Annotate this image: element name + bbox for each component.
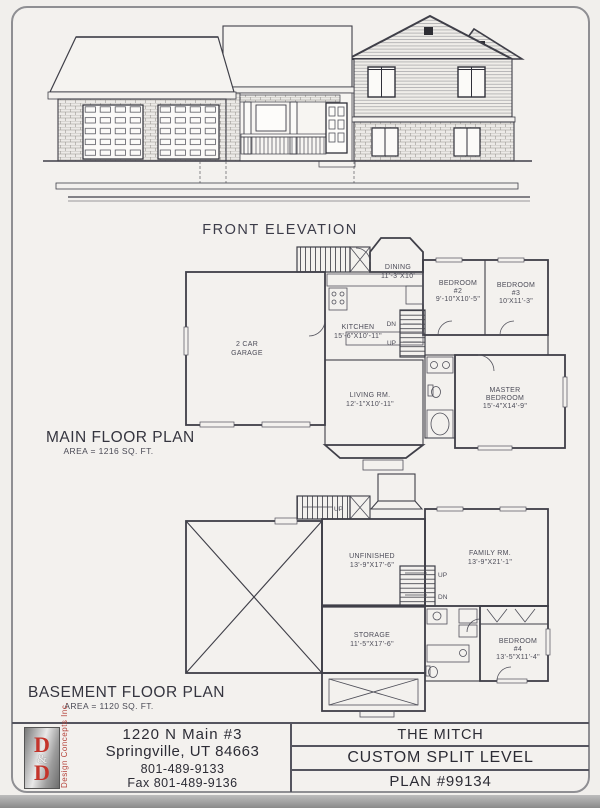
stairs-up-label: UP (438, 572, 447, 579)
master-label: 15'-4"X14'-9" (483, 403, 527, 410)
bedroom2-label: 9'-10"X10'-5" (436, 296, 480, 303)
garage-section (48, 37, 236, 161)
porch-railing (241, 137, 326, 154)
stairs-up-label: UP (334, 506, 343, 513)
bathroom (425, 355, 455, 438)
dining-label: 11'-3"X10' (381, 273, 415, 280)
kitchen-label: KITCHEN (342, 324, 375, 331)
logo-letter-d: D (34, 764, 50, 781)
dining-label: DINING (385, 264, 411, 271)
living-room (325, 360, 423, 470)
scanned-plan-sheet: FRONT ELEVATION (0, 0, 600, 808)
living-label: 12'-1"X10'-11" (346, 401, 394, 408)
center-entry-section (221, 26, 355, 167)
logo-tagline: Design Concepts Inc. (60, 726, 69, 788)
plan-type: CUSTOM SPLIT LEVEL (292, 747, 589, 770)
bedroom3-label: BEDROOM (497, 282, 535, 289)
master-label: MASTER (490, 387, 521, 394)
basement-room-labels: UNFINISHED 13'-9"X17'-6" FAMILY RM. 13'-… (334, 506, 540, 661)
gable-vent-icon (424, 27, 433, 35)
plan-name: THE MITCH (292, 724, 589, 747)
master-label: BEDROOM (486, 395, 524, 402)
unexcavated-area (186, 518, 322, 673)
center-stairs (400, 310, 425, 357)
basement-area: AREA = 1120 SQ. FT. (28, 701, 190, 711)
phone-number: 801-489-9133 (80, 762, 285, 776)
living-label: LIVING RM. (350, 392, 391, 399)
address-line2: Springville, UT 84663 (80, 743, 285, 760)
bedroom2-label: #2 (454, 288, 462, 295)
stairs-up-label: UP (387, 340, 396, 347)
grade-and-foundation (43, 161, 532, 201)
chimney (371, 474, 422, 509)
main-floor-plan-drawing: 2 CAR GARAGE KITCHEN 15'-6"X10'-11" DINI… (178, 232, 593, 472)
title-block-left: D & D Design Concepts Inc. 1220 N Main #… (12, 724, 292, 792)
unfinished-label: 13'-9"X17'-6" (350, 562, 394, 569)
garage-label: GARAGE (231, 350, 263, 357)
basement-porch (322, 673, 425, 717)
front-door (326, 103, 347, 153)
title-block: D & D Design Concepts Inc. 1220 N Main #… (12, 722, 589, 792)
entry-stairs (297, 247, 370, 272)
title-block-right: THE MITCH CUSTOM SPLIT LEVEL PLAN #99134 (292, 724, 589, 792)
basement-plan-title: BASEMENT FLOOR PLAN (28, 684, 225, 702)
stairs-dn-label: DN (387, 321, 397, 328)
dd-logo: D & D (24, 727, 60, 789)
bedroom3-label: #3 (512, 290, 520, 297)
garage-door (83, 105, 143, 159)
basement-bathroom (425, 606, 480, 681)
main-floor-plan-title: MAIN FLOOR PLAN (46, 429, 195, 447)
scan-edge-strip (0, 795, 600, 808)
storage-label: 11'-5"X17'-6" (350, 641, 394, 648)
bedroom4-label: #4 (514, 646, 522, 653)
right-two-story-section (348, 16, 522, 161)
family-label: FAMILY RM. (469, 550, 511, 557)
logo-letter-d: D (34, 736, 50, 753)
bedroom4-label: BEDROOM (499, 638, 537, 645)
storage-label: STORAGE (354, 632, 390, 639)
basement-plan-drawing: UNFINISHED 13'-9"X17'-6" FAMILY RM. 13'-… (175, 468, 595, 722)
garage-door (158, 105, 219, 159)
plan-number: PLAN #99134 (292, 771, 589, 792)
stairs-dn-label: DN (438, 594, 448, 601)
bedroom2-label: BEDROOM (439, 280, 477, 287)
main-floor-area: AREA = 1216 SQ. FT. (46, 446, 171, 456)
address-line1: 1220 N Main #3 (80, 726, 285, 743)
family-label: 13'-9"X21'-1" (468, 559, 512, 566)
unfinished-label: UNFINISHED (349, 553, 395, 560)
fax-number: Fax 801-489-9136 (80, 776, 285, 790)
storage-room (322, 606, 425, 673)
kitchen-label: 15'-6"X10'-11" (334, 333, 382, 340)
front-elevation-drawing (38, 6, 573, 208)
basement-center-stairs (400, 566, 435, 606)
company-address: 1220 N Main #3 Springville, UT 84663 801… (80, 726, 285, 790)
bedroom3-label: 10'X11'-3" (499, 298, 533, 305)
bedroom4-label: 13'-5"X11'-4" (496, 654, 540, 661)
garage-label: 2 CAR (236, 341, 258, 348)
